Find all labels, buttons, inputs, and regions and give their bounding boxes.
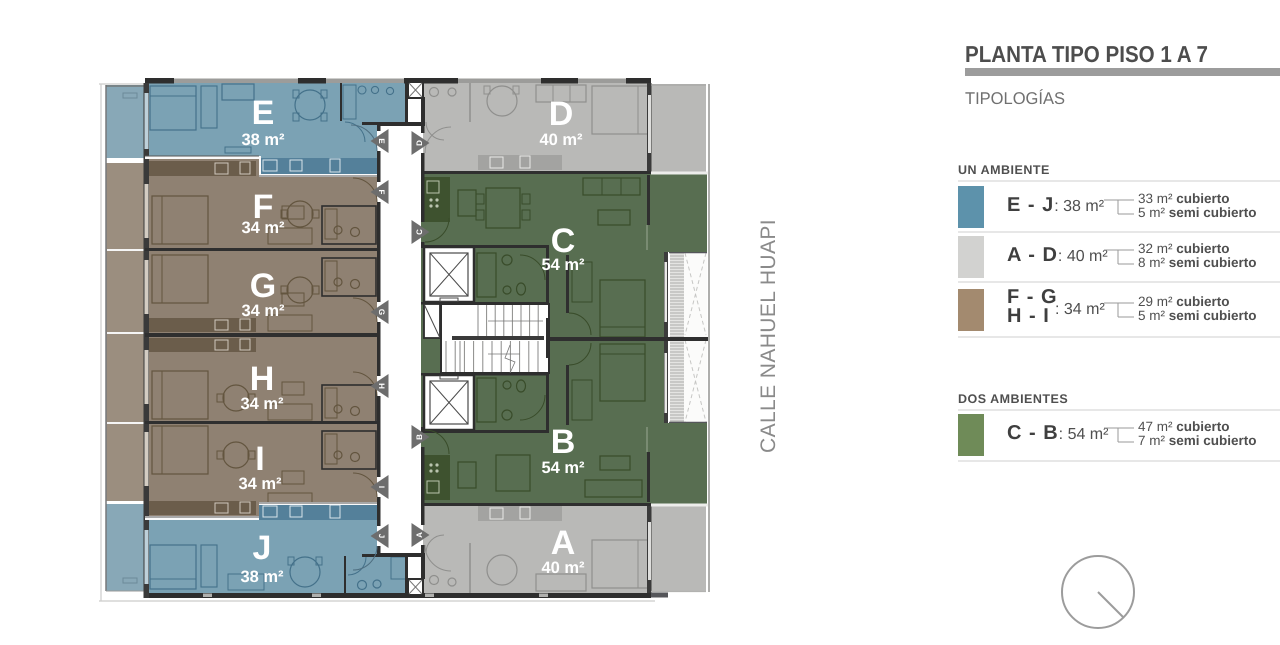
- svg-text:I: I: [255, 440, 264, 478]
- svg-text:33 m² cubierto: 33 m² cubierto: [1138, 191, 1230, 206]
- svg-text:8 m² semi cubierto: 8 m² semi cubierto: [1138, 255, 1257, 270]
- svg-text:34 m²: 34 m²: [238, 475, 282, 493]
- svg-text:H - I: H - I: [1007, 305, 1050, 327]
- svg-text:J: J: [377, 534, 386, 538]
- svg-text:PLANTA TIPO PISO 1 A 7: PLANTA TIPO PISO 1 A 7: [965, 41, 1208, 67]
- svg-text:: 34 m²: : 34 m²: [1055, 301, 1105, 318]
- svg-text:38 m²: 38 m²: [241, 131, 285, 149]
- svg-text:C: C: [415, 229, 424, 235]
- svg-text:C - B: 54 m²: C - B: 54 m²: [1007, 422, 1109, 444]
- svg-text:34 m²: 34 m²: [241, 219, 285, 237]
- svg-text:UN AMBIENTE: UN AMBIENTE: [958, 163, 1050, 177]
- svg-text:5 m² semi cubierto: 5 m² semi cubierto: [1138, 205, 1257, 220]
- svg-text:E: E: [377, 138, 386, 144]
- svg-text:54 m²: 54 m²: [541, 256, 585, 274]
- svg-text:40 m²: 40 m²: [539, 131, 583, 149]
- svg-text:D: D: [415, 140, 424, 146]
- svg-text:DOS AMBIENTES: DOS AMBIENTES: [958, 392, 1068, 406]
- svg-text:47 m² cubierto: 47 m² cubierto: [1138, 419, 1230, 434]
- svg-text:H: H: [250, 360, 275, 398]
- svg-text:F: F: [377, 190, 386, 195]
- svg-text:7 m² semi cubierto: 7 m² semi cubierto: [1138, 433, 1257, 448]
- svg-text:54 m²: 54 m²: [541, 459, 585, 477]
- svg-text:B: B: [415, 434, 424, 440]
- svg-text:TIPOLOGÍAS: TIPOLOGÍAS: [965, 89, 1065, 108]
- svg-text:A: A: [551, 524, 576, 562]
- svg-text:A: A: [415, 532, 424, 538]
- svg-text:32 m² cubierto: 32 m² cubierto: [1138, 241, 1230, 256]
- svg-text:34 m²: 34 m²: [241, 302, 285, 320]
- svg-text:29 m² cubierto: 29 m² cubierto: [1138, 294, 1230, 309]
- svg-text:E: E: [252, 94, 275, 132]
- svg-text:H: H: [377, 383, 386, 389]
- svg-text:C: C: [551, 222, 576, 260]
- svg-text:I: I: [377, 486, 386, 488]
- svg-text:E - J: 38 m²: E - J: 38 m²: [1007, 194, 1105, 216]
- svg-text:B: B: [551, 423, 576, 461]
- svg-text:5 m² semi cubierto: 5 m² semi cubierto: [1138, 308, 1257, 323]
- svg-text:J: J: [253, 529, 272, 567]
- svg-text:D: D: [549, 95, 574, 133]
- svg-text:34 m²: 34 m²: [240, 395, 284, 413]
- svg-text:40 m²: 40 m²: [541, 559, 585, 577]
- svg-text:CALLE NAHUEL HUAPI: CALLE NAHUEL HUAPI: [757, 219, 780, 453]
- svg-text:A - D: 40 m²: A - D: 40 m²: [1007, 244, 1108, 266]
- svg-text:38 m²: 38 m²: [240, 568, 284, 586]
- svg-text:G: G: [250, 267, 276, 305]
- svg-text:G: G: [377, 309, 386, 315]
